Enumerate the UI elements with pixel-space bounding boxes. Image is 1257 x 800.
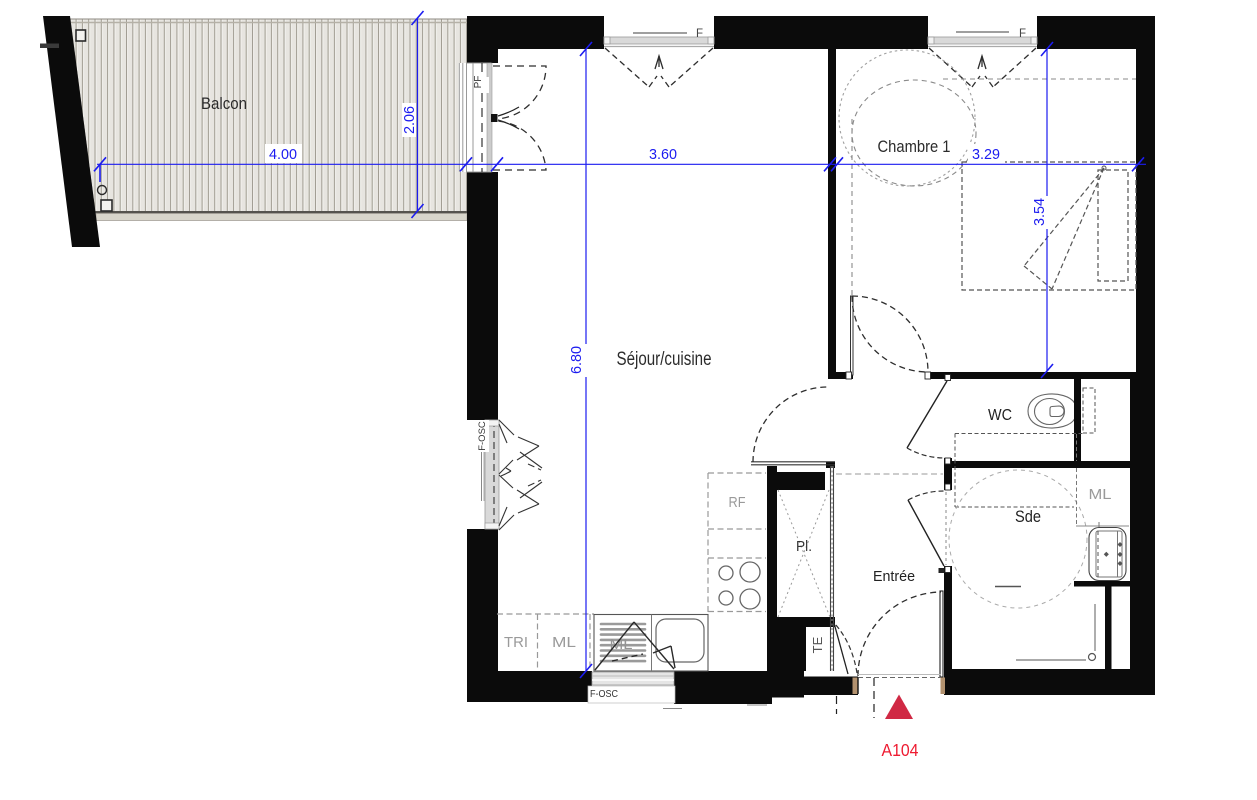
svg-text:3.60: 3.60 <box>649 146 677 163</box>
svg-text:WC: WC <box>988 407 1012 424</box>
svg-text:Balcon: Balcon <box>201 95 247 113</box>
svg-text:Séjour/cuisine: Séjour/cuisine <box>617 349 712 370</box>
svg-text:4.00: 4.00 <box>269 146 297 163</box>
svg-text:3.54: 3.54 <box>1031 198 1048 226</box>
svg-text:F-OSC: F-OSC <box>590 689 618 700</box>
svg-text:TRI: TRI <box>504 634 528 651</box>
svg-text:TE: TE <box>810 636 825 653</box>
svg-text:Pl.: Pl. <box>796 539 812 555</box>
svg-text:PF: PF <box>473 76 484 89</box>
svg-text:Entrée: Entrée <box>873 568 915 585</box>
svg-text:F: F <box>1019 28 1026 40</box>
svg-text:Sde: Sde <box>1015 508 1041 526</box>
svg-text:F-OSC: F-OSC <box>477 421 488 451</box>
svg-text:2.06: 2.06 <box>401 106 418 134</box>
svg-text:3.29: 3.29 <box>972 146 1000 163</box>
svg-text:F: F <box>696 28 703 40</box>
svg-text:ML: ML <box>1089 486 1112 503</box>
svg-text:A104: A104 <box>882 740 919 760</box>
svg-text:6.80: 6.80 <box>568 346 585 374</box>
svg-text:Chambre 1: Chambre 1 <box>878 137 951 156</box>
svg-text:ML: ML <box>552 634 576 651</box>
svg-text:RF: RF <box>729 494 746 511</box>
